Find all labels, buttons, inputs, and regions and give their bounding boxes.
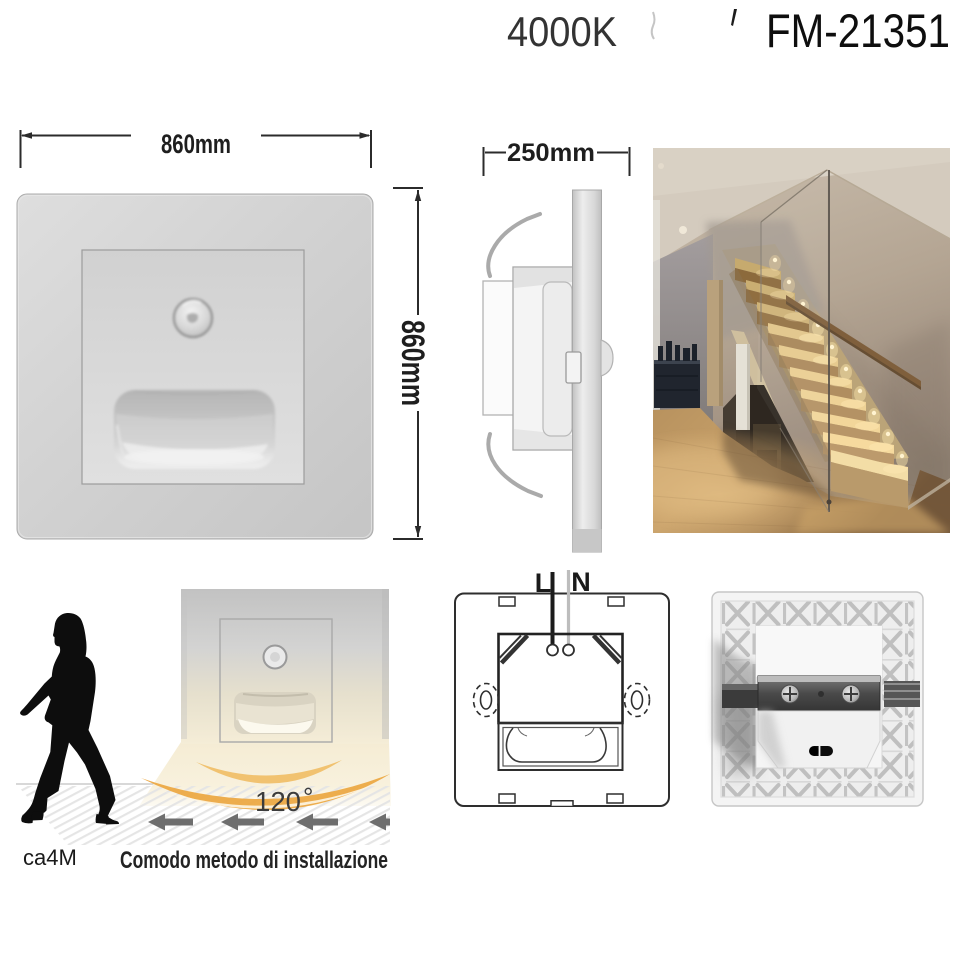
- svg-text:860mm: 860mm: [395, 320, 431, 406]
- svg-text:250mm: 250mm: [507, 139, 595, 167]
- svg-text:FM-21351: FM-21351: [766, 4, 950, 57]
- svg-text:L: L: [535, 568, 552, 598]
- svg-text:°: °: [303, 782, 313, 812]
- svg-text:4000K: 4000K: [507, 8, 617, 55]
- svg-text:Comodo metodo di installazione: Comodo metodo di installazione: [120, 847, 388, 874]
- svg-text:860mm: 860mm: [161, 129, 231, 159]
- svg-text:120: 120: [255, 786, 301, 817]
- svg-text:N: N: [571, 567, 591, 597]
- svg-text:ca4M: ca4M: [23, 845, 77, 870]
